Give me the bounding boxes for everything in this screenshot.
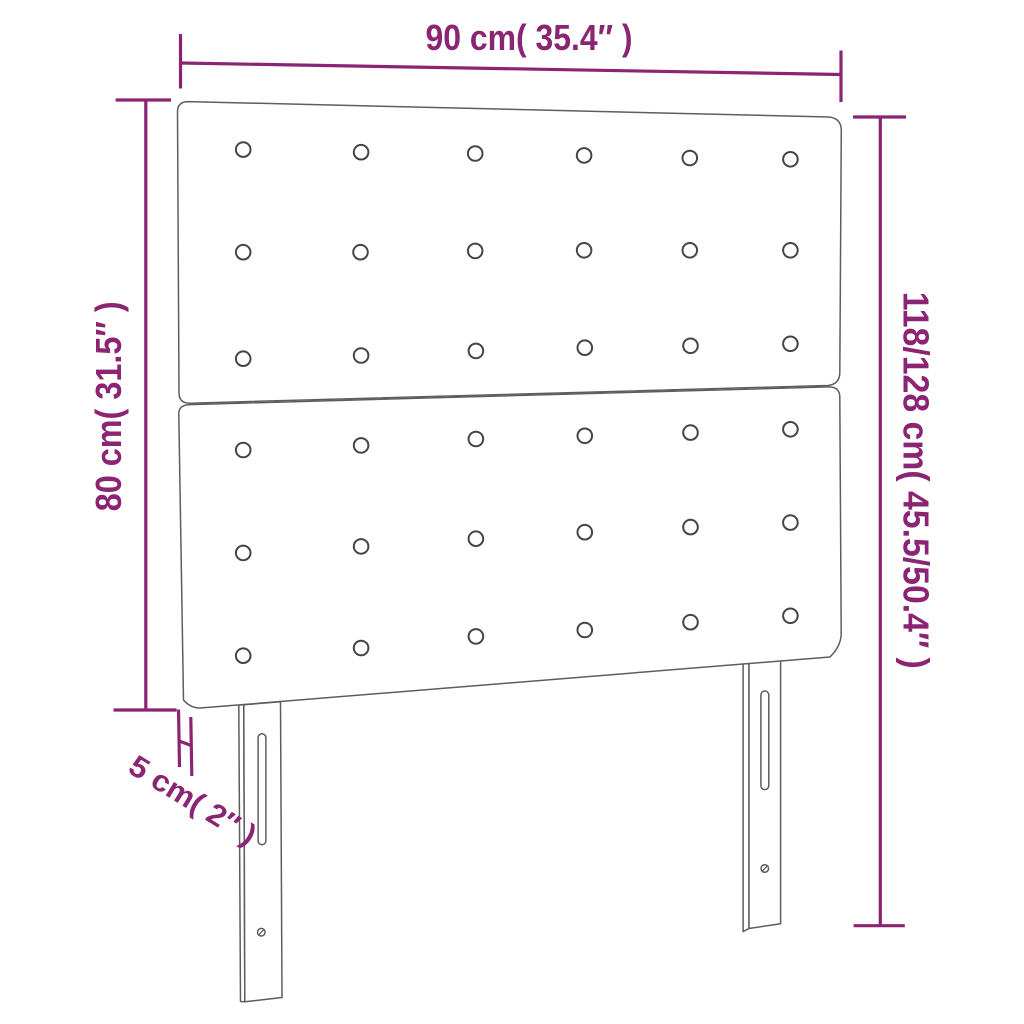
svg-text:90 cm( 35.4″ ): 90 cm( 35.4″ ) xyxy=(426,17,633,58)
svg-text:118/128 cm( 45.5/50.4″ ): 118/128 cm( 45.5/50.4″ ) xyxy=(896,292,937,669)
svg-text:80 cm( 31.5″ ): 80 cm( 31.5″ ) xyxy=(88,301,129,511)
